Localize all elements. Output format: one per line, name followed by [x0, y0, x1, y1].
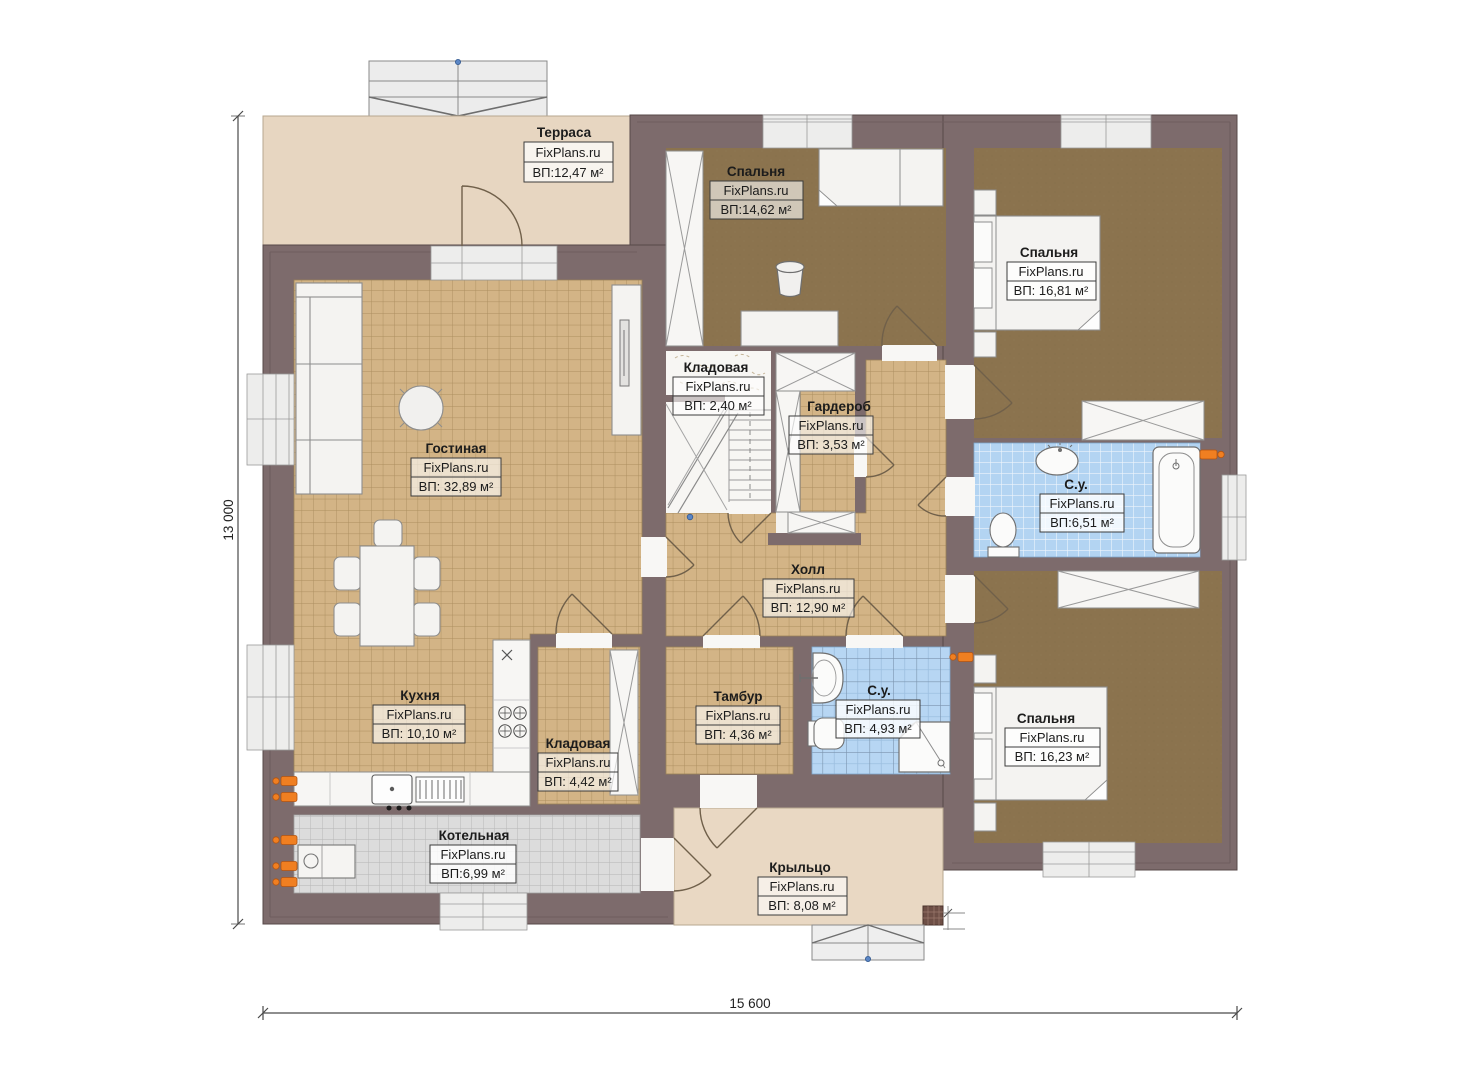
svg-text:FixPlans.ru: FixPlans.ru — [798, 418, 863, 433]
svg-text:Тамбур: Тамбур — [714, 689, 763, 704]
svg-text:Котельная: Котельная — [439, 828, 510, 843]
svg-text:FixPlans.ru: FixPlans.ru — [1049, 496, 1114, 511]
svg-text:13 000: 13 000 — [221, 499, 236, 540]
svg-text:15 600: 15 600 — [729, 996, 770, 1011]
svg-text:FixPlans.ru: FixPlans.ru — [440, 847, 505, 862]
svg-text:Спальня: Спальня — [1017, 711, 1075, 726]
svg-text:Кладовая: Кладовая — [684, 360, 749, 375]
svg-text:ВП: 8,08 м²: ВП: 8,08 м² — [768, 898, 836, 913]
svg-text:FixPlans.ru: FixPlans.ru — [1018, 264, 1083, 279]
svg-text:ВП: 12,90 м²: ВП: 12,90 м² — [771, 600, 846, 615]
svg-text:FixPlans.ru: FixPlans.ru — [685, 379, 750, 394]
svg-text:FixPlans.ru: FixPlans.ru — [705, 708, 770, 723]
svg-text:ВП: 10,10 м²: ВП: 10,10 м² — [382, 726, 457, 741]
svg-text:Кладовая: Кладовая — [546, 736, 611, 751]
svg-text:ВП:14,62 м²: ВП:14,62 м² — [720, 202, 792, 217]
svg-text:FixPlans.ru: FixPlans.ru — [535, 145, 600, 160]
svg-text:ВП: 4,93 м²: ВП: 4,93 м² — [844, 721, 912, 736]
svg-text:ВП: 16,81 м²: ВП: 16,81 м² — [1014, 283, 1089, 298]
svg-text:ВП: 4,36 м²: ВП: 4,36 м² — [704, 727, 772, 742]
svg-text:ВП: 2,40 м²: ВП: 2,40 м² — [684, 398, 752, 413]
svg-text:Холл: Холл — [791, 562, 825, 577]
svg-text:Спальня: Спальня — [1020, 245, 1078, 260]
svg-text:ВП: 16,23 м²: ВП: 16,23 м² — [1015, 749, 1090, 764]
svg-text:FixPlans.ru: FixPlans.ru — [1019, 730, 1084, 745]
svg-text:ВП: 32,89 м²: ВП: 32,89 м² — [419, 479, 494, 494]
svg-text:ВП:12,47 м²: ВП:12,47 м² — [532, 165, 604, 180]
svg-text:FixPlans.ru: FixPlans.ru — [845, 702, 910, 717]
svg-text:FixPlans.ru: FixPlans.ru — [769, 879, 834, 894]
svg-text:С.у.: С.у. — [867, 683, 891, 698]
svg-text:Гардероб: Гардероб — [807, 399, 871, 414]
svg-text:FixPlans.ru: FixPlans.ru — [545, 755, 610, 770]
svg-text:Крыльцо: Крыльцо — [769, 860, 830, 875]
svg-text:Гостиная: Гостиная — [425, 441, 486, 456]
svg-text:FixPlans.ru: FixPlans.ru — [723, 183, 788, 198]
svg-text:FixPlans.ru: FixPlans.ru — [423, 460, 488, 475]
svg-text:FixPlans.ru: FixPlans.ru — [775, 581, 840, 596]
svg-text:С.у.: С.у. — [1064, 477, 1088, 492]
svg-text:ВП:6,51 м²: ВП:6,51 м² — [1050, 515, 1114, 530]
svg-text:Кухня: Кухня — [400, 688, 439, 703]
svg-text:ВП: 4,42 м²: ВП: 4,42 м² — [544, 774, 612, 789]
svg-text:FixPlans.ru: FixPlans.ru — [386, 707, 451, 722]
svg-text:Спальня: Спальня — [727, 164, 785, 179]
svg-text:Терраса: Терраса — [537, 125, 592, 140]
svg-text:ВП:6,99 м²: ВП:6,99 м² — [441, 866, 505, 881]
svg-text:ВП: 3,53 м²: ВП: 3,53 м² — [797, 437, 865, 452]
